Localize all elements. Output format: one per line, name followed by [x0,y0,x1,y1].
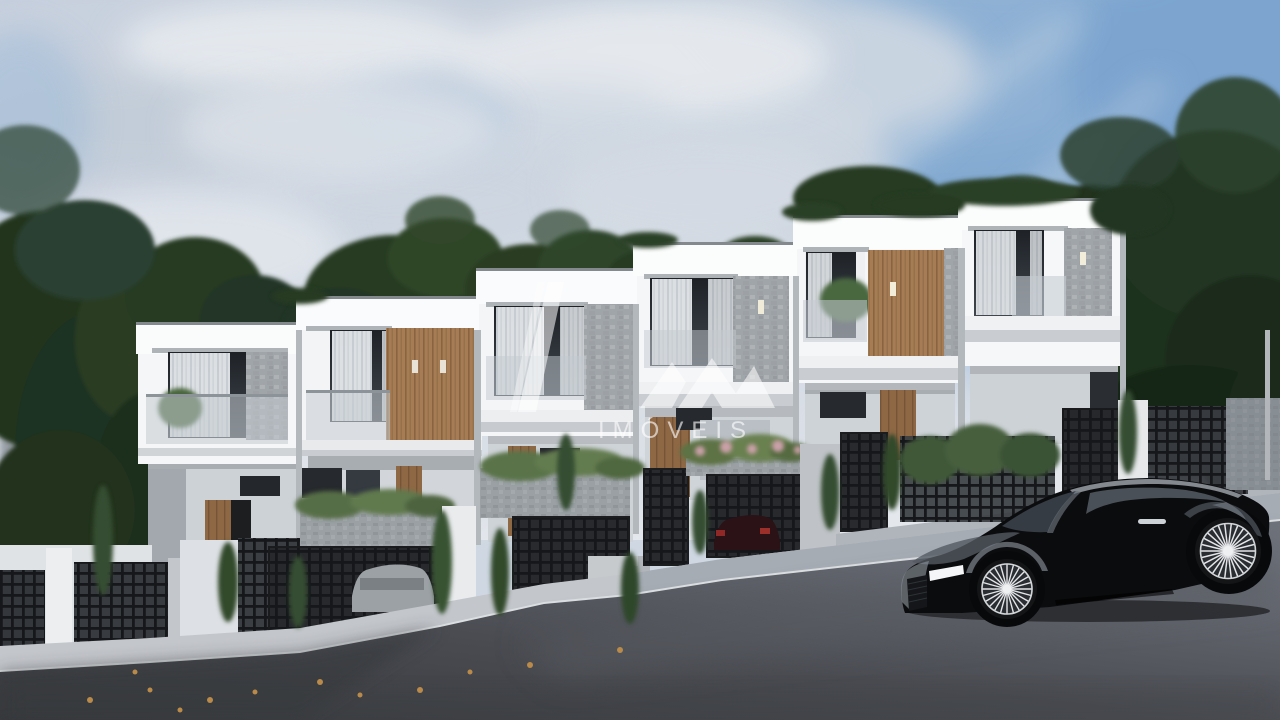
svg-text:IMÓVEIS: IMÓVEIS [598,417,754,444]
